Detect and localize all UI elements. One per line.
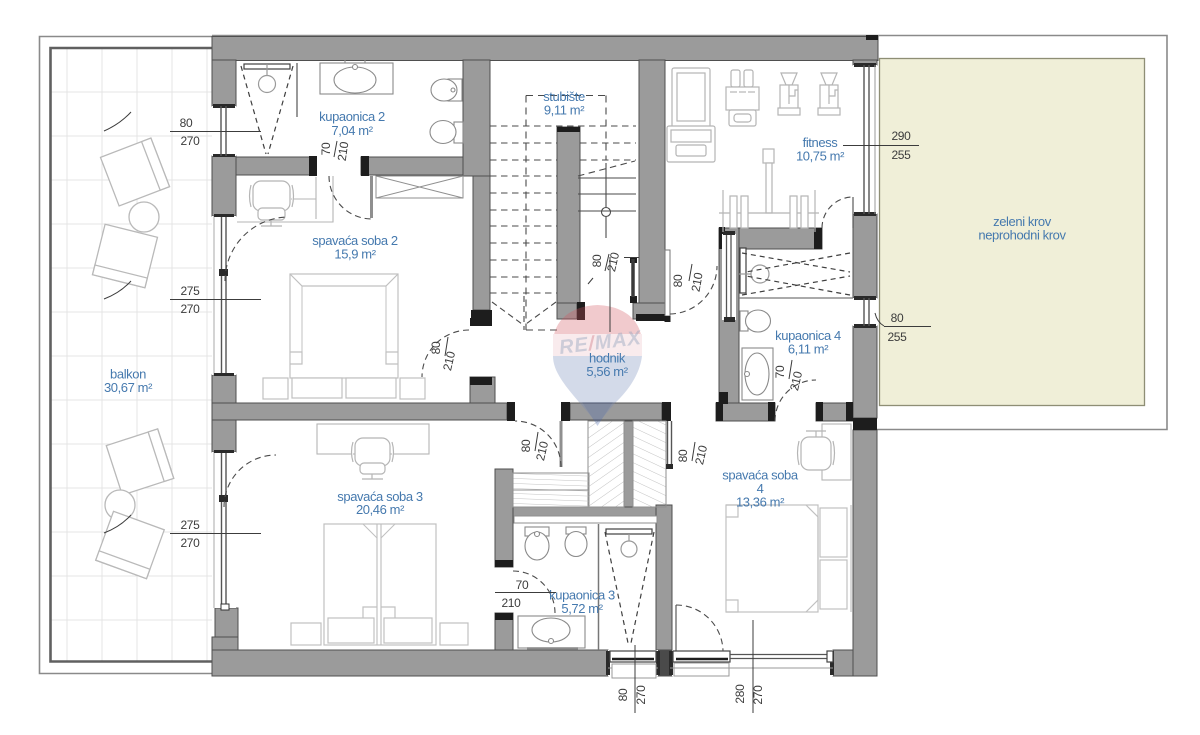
svg-text:20,46 m²: 20,46 m² — [356, 502, 405, 517]
svg-text:neprohodni krov: neprohodni krov — [978, 228, 1066, 243]
svg-text:290: 290 — [891, 129, 911, 143]
svg-text:255: 255 — [887, 330, 907, 344]
svg-text:270: 270 — [751, 685, 765, 705]
svg-text:210: 210 — [501, 596, 521, 610]
svg-text:5,56 m²: 5,56 m² — [586, 364, 628, 379]
svg-text:15,9 m²: 15,9 m² — [334, 247, 376, 262]
svg-text:30,67 m²: 30,67 m² — [104, 380, 153, 395]
svg-text:7,04 m²: 7,04 m² — [331, 123, 373, 138]
svg-text:70: 70 — [319, 142, 333, 155]
svg-text:275: 275 — [180, 518, 200, 532]
svg-text:80: 80 — [671, 274, 685, 287]
svg-text:80: 80 — [590, 254, 604, 267]
svg-text:80: 80 — [519, 439, 533, 452]
svg-text:kupaonica 2: kupaonica 2 — [319, 109, 385, 124]
svg-text:6,11 m²: 6,11 m² — [788, 342, 829, 357]
svg-text:70: 70 — [773, 365, 787, 378]
svg-text:80: 80 — [180, 116, 193, 130]
svg-text:10,75 m²: 10,75 m² — [796, 149, 845, 164]
svg-text:210: 210 — [335, 140, 352, 162]
svg-text:70: 70 — [516, 578, 529, 592]
svg-text:280: 280 — [733, 684, 747, 704]
svg-text:80: 80 — [891, 311, 904, 325]
svg-text:80: 80 — [429, 341, 443, 354]
svg-text:270: 270 — [180, 302, 200, 316]
svg-text:270: 270 — [180, 536, 200, 550]
svg-text:255: 255 — [891, 148, 911, 162]
svg-text:80: 80 — [616, 688, 630, 701]
svg-text:275: 275 — [180, 284, 200, 298]
svg-text:13,36 m²: 13,36 m² — [736, 495, 785, 510]
svg-text:270: 270 — [180, 134, 200, 148]
svg-text:5,72 m²: 5,72 m² — [561, 601, 603, 616]
svg-text:270: 270 — [634, 685, 648, 705]
svg-text:9,11 m²: 9,11 m² — [544, 103, 585, 118]
svg-text:80: 80 — [676, 449, 690, 462]
